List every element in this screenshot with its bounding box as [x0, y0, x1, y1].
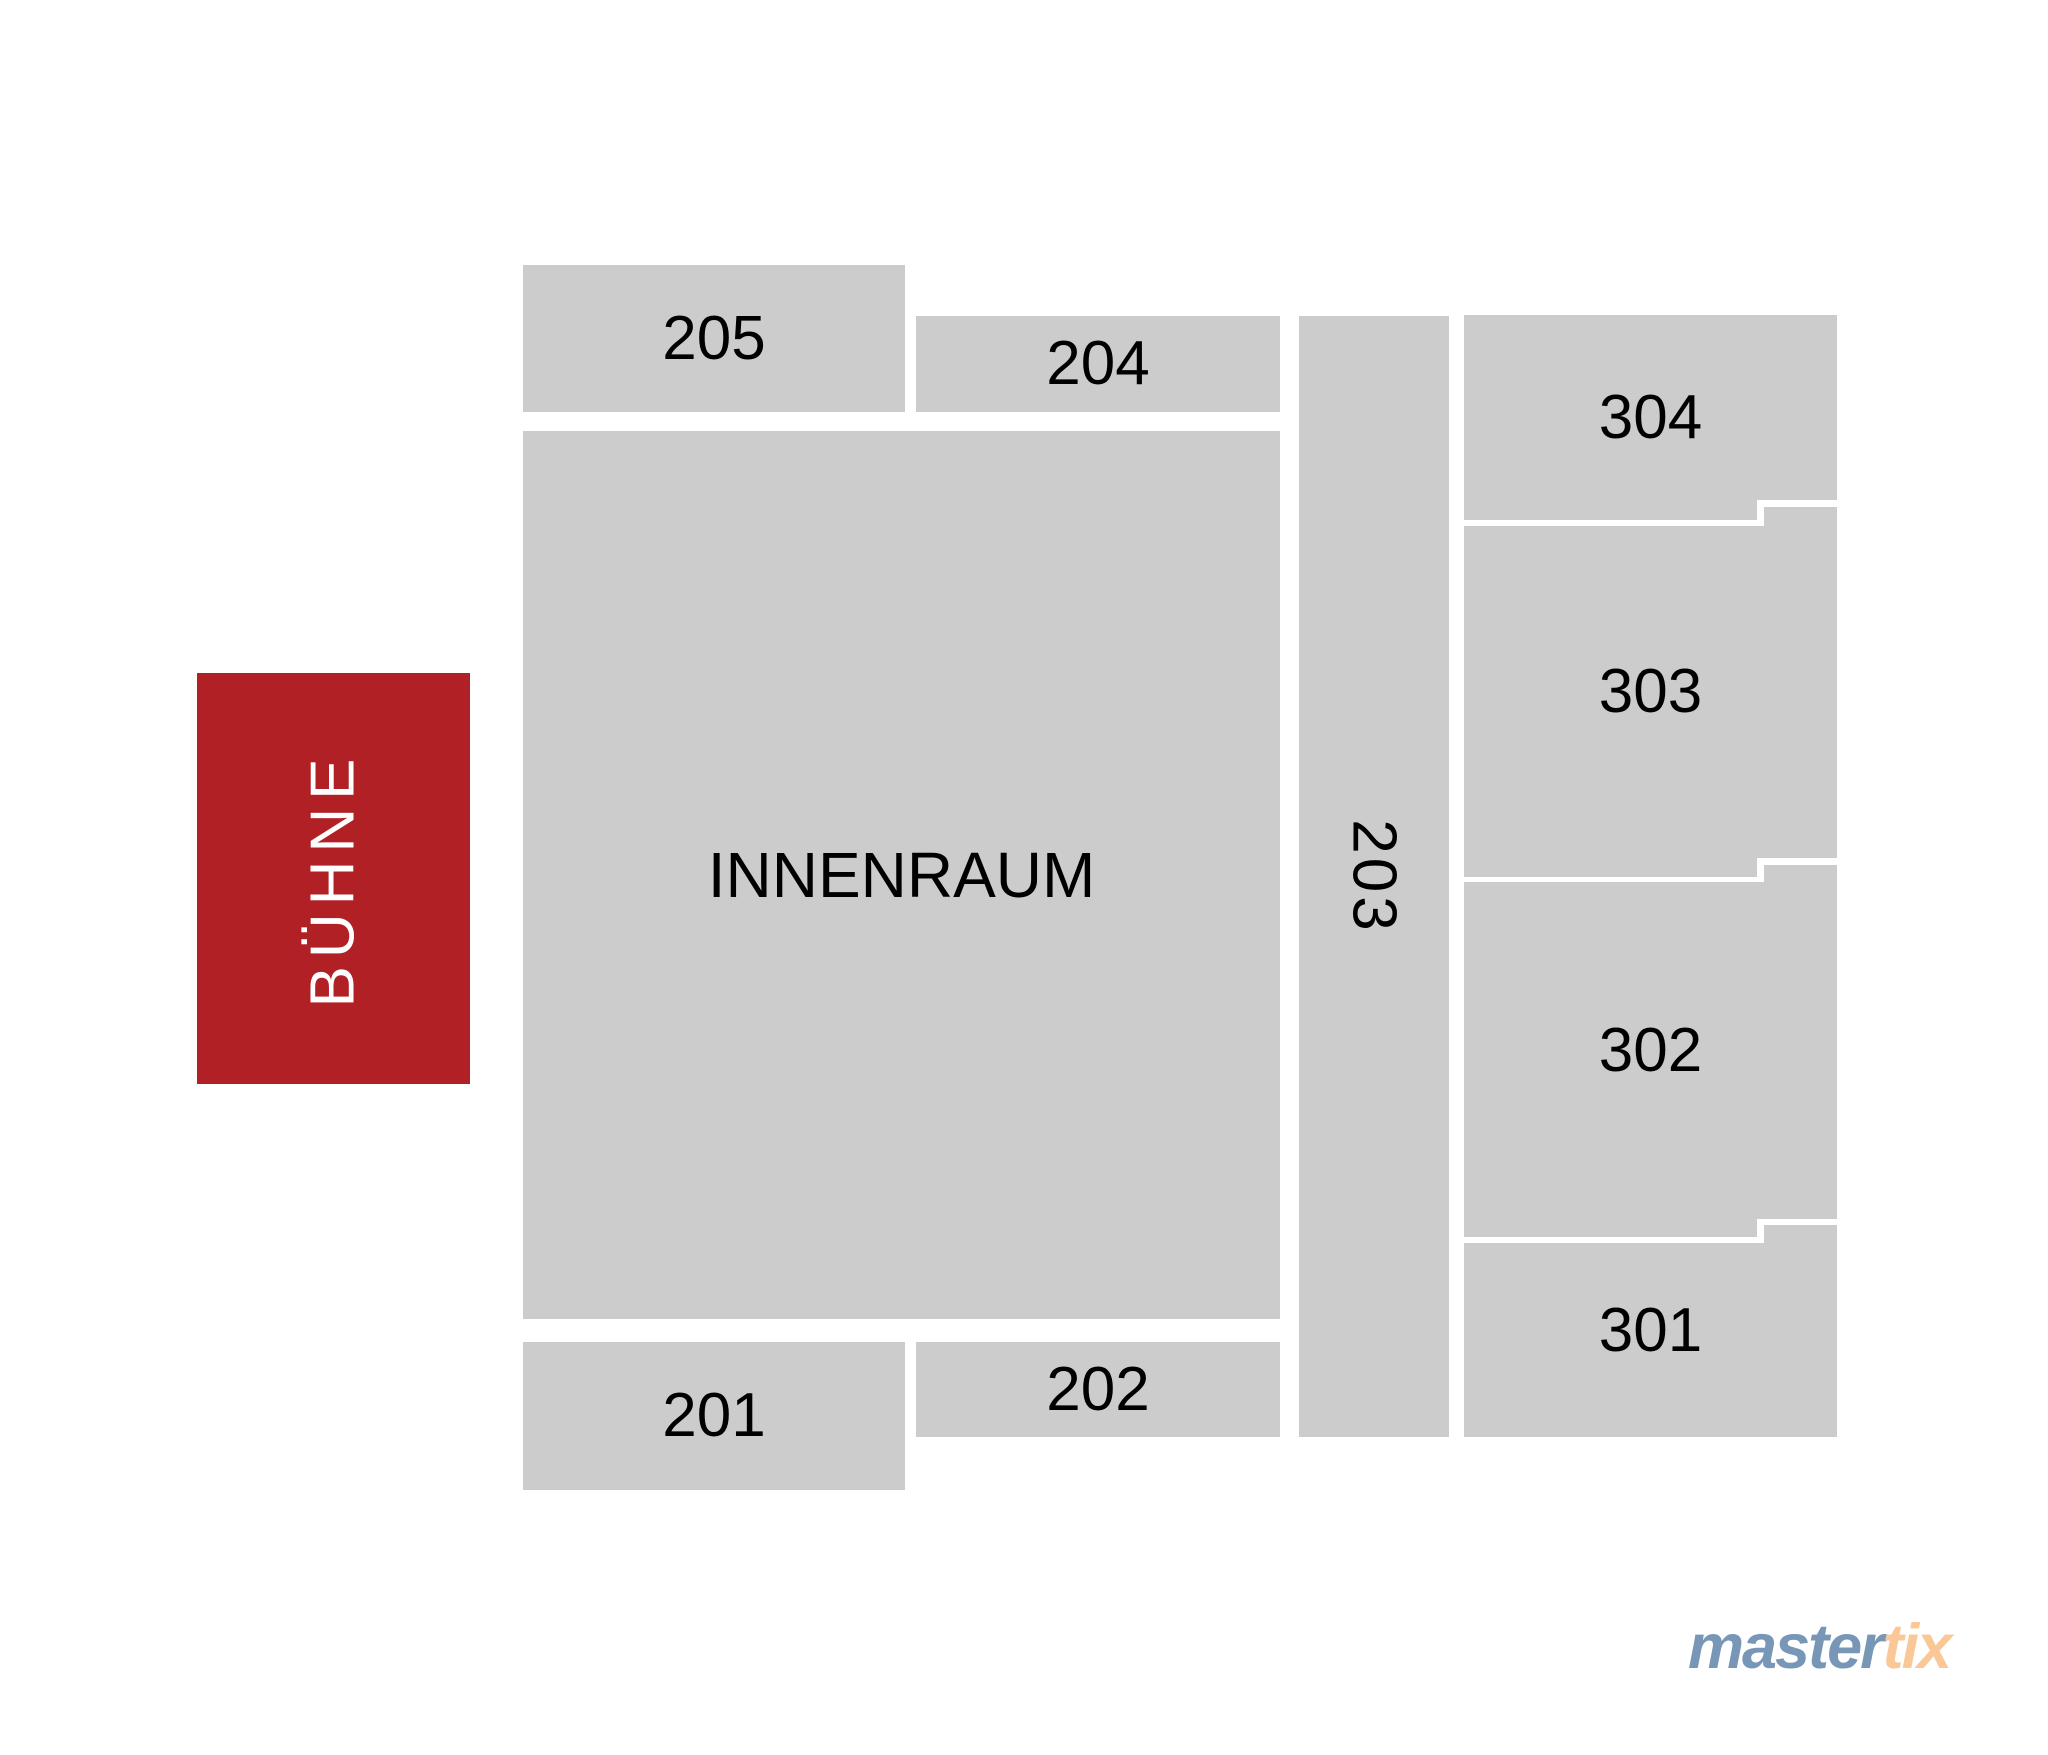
section-innenraum[interactable]: INNENRAUM: [523, 431, 1280, 1319]
seating-chart: BÜHNE 205 204 INNENRAUM 201 202 203 304 …: [0, 0, 2048, 1755]
section-303[interactable]: 303: [1464, 507, 1837, 877]
section-203-label: 203: [1343, 819, 1405, 934]
logo-text-master: master: [1688, 1612, 1883, 1682]
section-204-label: 204: [1046, 333, 1149, 395]
section-301[interactable]: 301: [1464, 1225, 1837, 1437]
section-304[interactable]: 304: [1464, 315, 1837, 520]
section-205-label: 205: [662, 308, 765, 370]
section-303-label: 303: [1599, 661, 1702, 723]
section-301-label: 301: [1599, 1300, 1702, 1362]
section-203[interactable]: 203: [1299, 316, 1449, 1437]
section-302-label: 302: [1599, 1020, 1702, 1082]
section-304-label: 304: [1599, 387, 1702, 449]
section-innenraum-label: INNENRAUM: [708, 843, 1096, 907]
section-204[interactable]: 204: [916, 316, 1280, 412]
section-201[interactable]: 201: [523, 1342, 905, 1490]
section-202-label: 202: [1046, 1359, 1149, 1421]
mastertix-logo: mastertix: [1688, 1616, 1950, 1679]
logo-text-tix: tix: [1883, 1612, 1951, 1682]
section-205[interactable]: 205: [523, 265, 905, 412]
section-201-label: 201: [662, 1385, 765, 1447]
section-302[interactable]: 302: [1464, 865, 1837, 1237]
stage-label: BÜHNE: [303, 750, 365, 1007]
section-202[interactable]: 202: [916, 1342, 1280, 1437]
stage-block: BÜHNE: [197, 673, 470, 1084]
